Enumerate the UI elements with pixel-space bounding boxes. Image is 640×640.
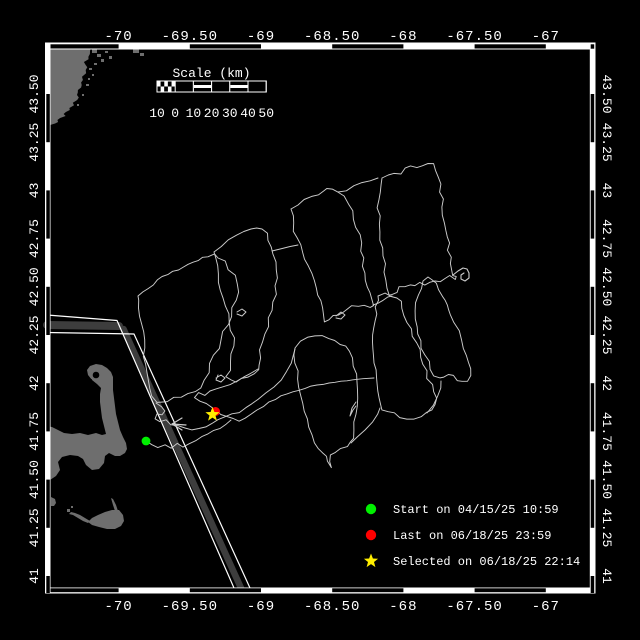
svg-text:43.25: 43.25 — [27, 123, 42, 162]
svg-text:41.75: 41.75 — [599, 412, 614, 451]
svg-text:-69.50: -69.50 — [162, 599, 218, 615]
svg-text:-70: -70 — [104, 599, 132, 615]
svg-text:10: 10 — [149, 106, 165, 121]
svg-text:41: 41 — [599, 568, 614, 584]
svg-text:0: 0 — [171, 106, 179, 121]
svg-text:42.50: 42.50 — [599, 267, 614, 306]
svg-text:43.25: 43.25 — [599, 123, 614, 162]
svg-text:43.50: 43.50 — [27, 74, 42, 113]
svg-text:-69: -69 — [247, 599, 275, 615]
svg-text:-68: -68 — [389, 599, 417, 615]
svg-text:43.50: 43.50 — [599, 74, 614, 113]
svg-text:-68.50: -68.50 — [304, 29, 360, 45]
svg-text:-67.50: -67.50 — [446, 29, 502, 45]
svg-text:41.50: 41.50 — [27, 460, 42, 499]
svg-text:40: 40 — [240, 106, 256, 121]
svg-text:Start on 04/15/25 10:59: Start on 04/15/25 10:59 — [393, 503, 559, 517]
svg-text:43: 43 — [599, 183, 614, 199]
svg-text:-70: -70 — [104, 29, 132, 45]
svg-text:-67: -67 — [532, 599, 560, 615]
svg-text:20: 20 — [204, 106, 220, 121]
svg-text:50: 50 — [258, 106, 274, 121]
svg-text:Selected on 06/18/25 22:14: Selected on 06/18/25 22:14 — [393, 555, 580, 569]
svg-text:41.75: 41.75 — [27, 412, 42, 451]
svg-text:42: 42 — [27, 375, 42, 391]
svg-text:41.25: 41.25 — [27, 508, 42, 547]
svg-text:42.75: 42.75 — [599, 219, 614, 258]
svg-text:43: 43 — [27, 183, 42, 199]
svg-text:Scale (km): Scale (km) — [172, 66, 250, 81]
svg-text:-67: -67 — [532, 29, 560, 45]
svg-text:41.25: 41.25 — [599, 508, 614, 547]
svg-text:42.50: 42.50 — [27, 267, 42, 306]
svg-text:-69: -69 — [247, 29, 275, 45]
svg-text:-67.50: -67.50 — [446, 599, 502, 615]
svg-text:42.25: 42.25 — [599, 315, 614, 354]
svg-text:-68: -68 — [389, 29, 417, 45]
svg-text:41.50: 41.50 — [599, 460, 614, 499]
svg-text:10: 10 — [186, 106, 202, 121]
svg-text:-69.50: -69.50 — [162, 29, 218, 45]
svg-text:Last on 06/18/25 23:59: Last on 06/18/25 23:59 — [393, 529, 551, 543]
svg-text:42.25: 42.25 — [27, 315, 42, 354]
svg-text:30: 30 — [222, 106, 238, 121]
svg-text:42: 42 — [599, 375, 614, 391]
svg-text:42.75: 42.75 — [27, 219, 42, 258]
svg-text:-68.50: -68.50 — [304, 599, 360, 615]
svg-text:41: 41 — [27, 568, 42, 584]
